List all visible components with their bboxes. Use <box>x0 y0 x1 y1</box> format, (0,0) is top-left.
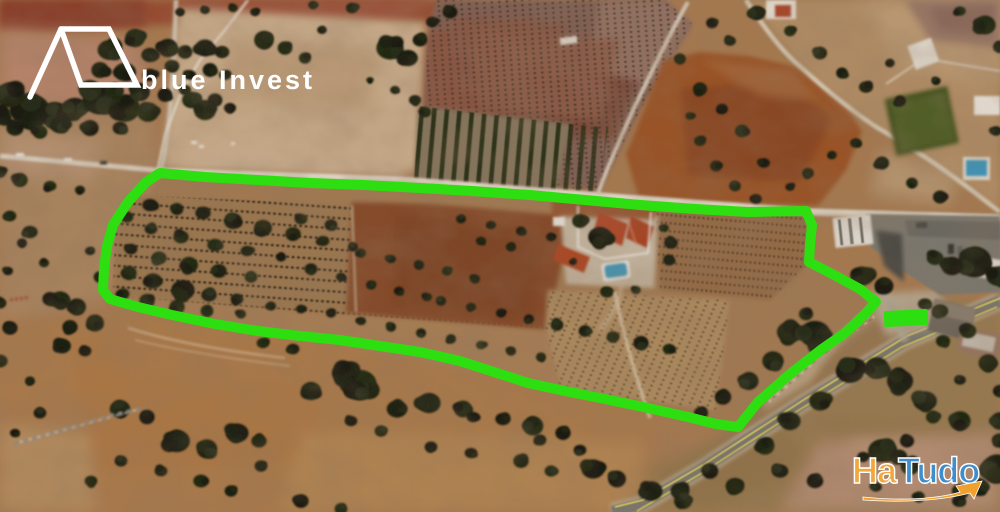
svg-text:Ha: Ha <box>852 450 898 491</box>
svg-text:blue Invest: blue Invest <box>141 65 315 95</box>
